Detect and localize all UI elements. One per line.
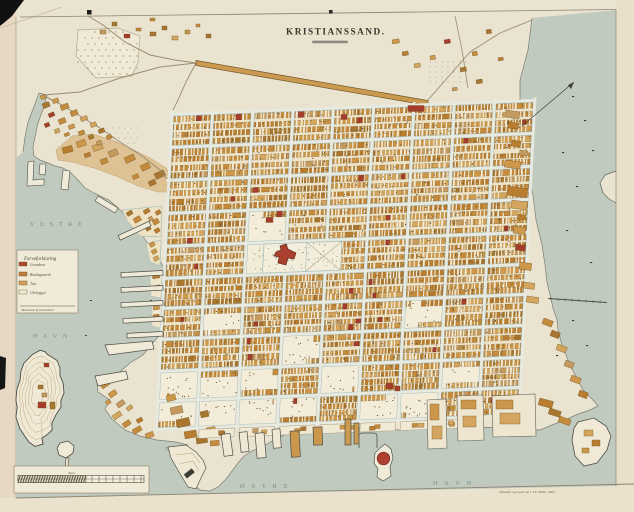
- svg-text:KRISTIANSSAND.: KRISTIANSSAND.: [286, 27, 386, 37]
- svg-text:Alen: Alen: [68, 471, 75, 475]
- svg-text:Ubebygget: Ubebygget: [30, 291, 47, 295]
- svg-text:V E S T R E: V E S T R E: [30, 222, 84, 228]
- svg-text:Grundmur: Grundmur: [30, 263, 46, 267]
- svg-text:Maalestok og forkortelser: Maalestok og forkortelser: [20, 308, 55, 312]
- svg-text:Ø S T R E: Ø S T R E: [240, 483, 290, 490]
- svg-text:Farveforklaring: Farveforklaring: [23, 257, 57, 262]
- svg-text:Trae: Trae: [30, 282, 37, 286]
- svg-text:H A V N: H A V N: [33, 334, 69, 340]
- svg-text:Bindingsvaerk: Bindingsvaerk: [30, 273, 51, 277]
- svg-text:H A V N: H A V N: [433, 480, 474, 487]
